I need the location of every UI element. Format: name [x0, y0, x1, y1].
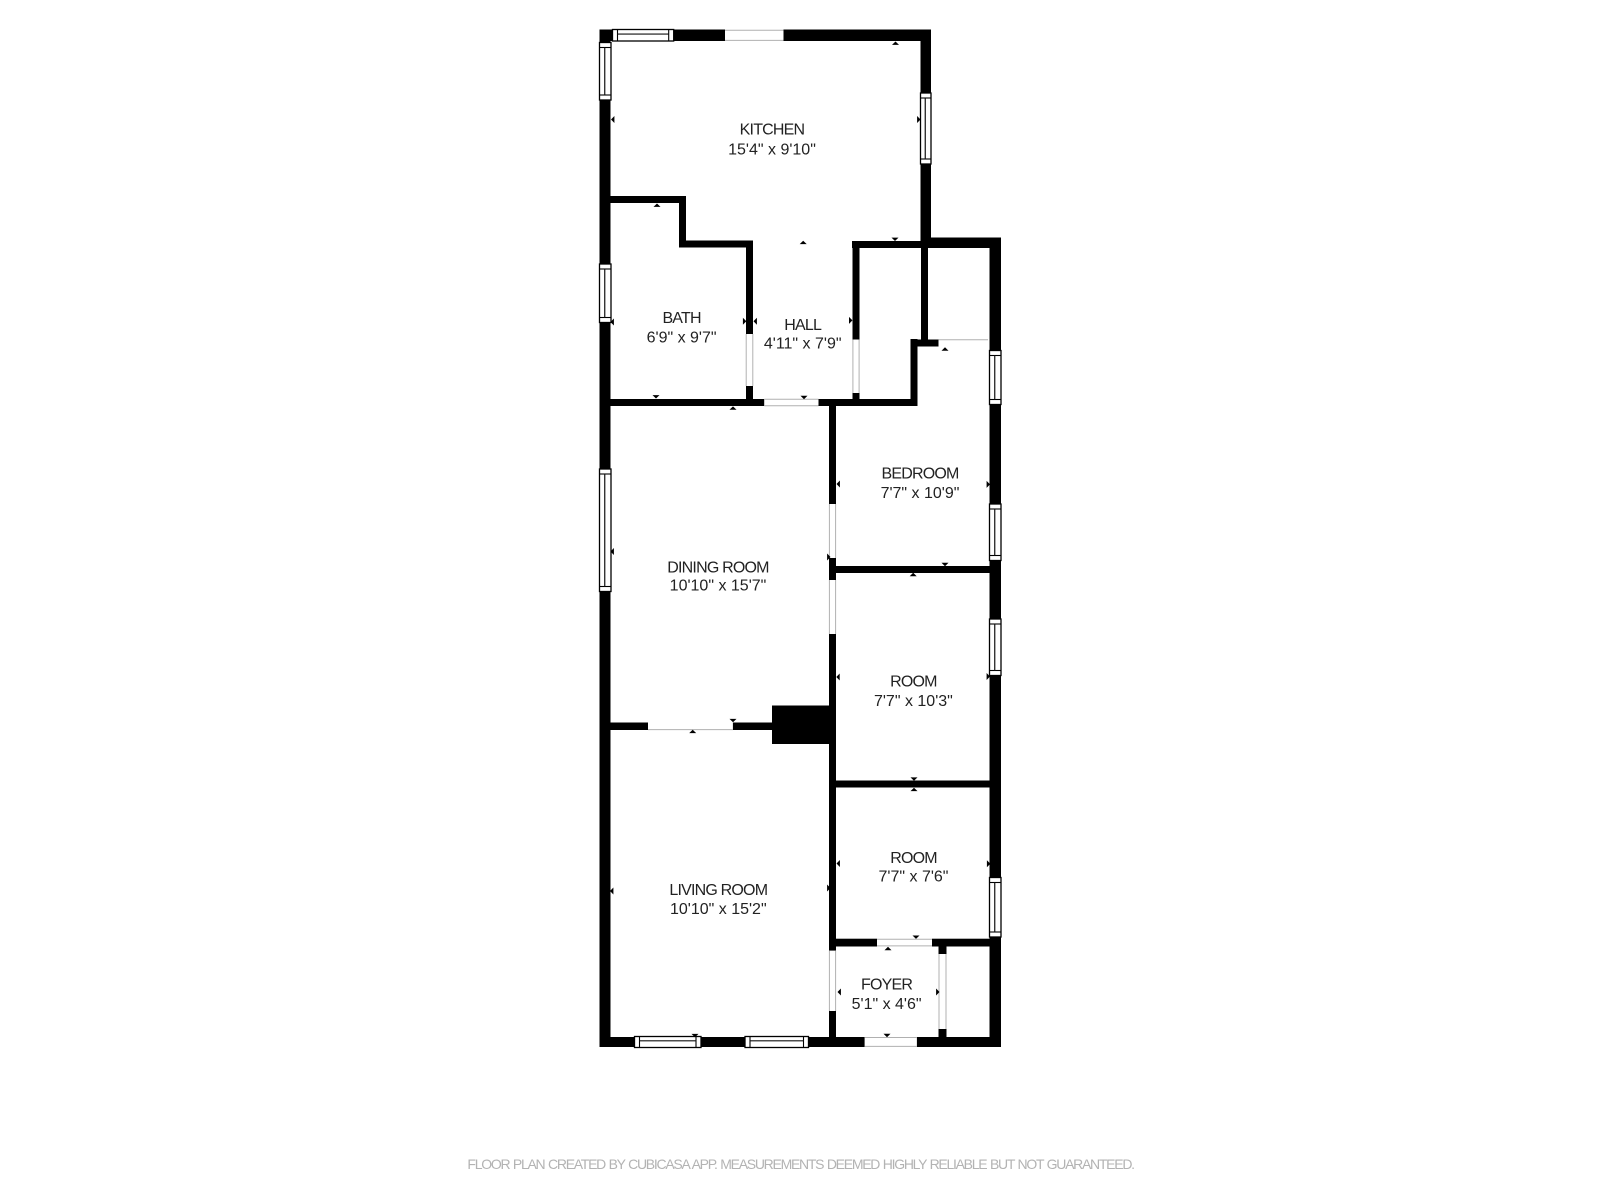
svg-text:BATH: BATH [662, 310, 701, 327]
svg-text:15'4" x 9'10": 15'4" x 9'10" [728, 142, 816, 159]
svg-text:LIVING ROOM: LIVING ROOM [669, 882, 767, 899]
svg-text:6'9" x 9'7": 6'9" x 9'7" [647, 329, 717, 346]
svg-text:10'10" x 15'2": 10'10" x 15'2" [670, 901, 767, 918]
svg-text:5'1" x 4'6": 5'1" x 4'6" [852, 996, 922, 1013]
svg-text:BEDROOM: BEDROOM [881, 466, 959, 483]
svg-text:FOYER: FOYER [861, 977, 912, 994]
svg-text:FLOOR PLAN CREATED BY CUBICASA: FLOOR PLAN CREATED BY CUBICASA APP. MEAS… [467, 1156, 1134, 1172]
svg-text:10'10" x 15'7": 10'10" x 15'7" [670, 578, 767, 595]
svg-text:HALL: HALL [784, 317, 822, 334]
svg-text:7'7" x 10'9": 7'7" x 10'9" [881, 485, 960, 502]
svg-text:7'7" x 10'3": 7'7" x 10'3" [874, 693, 953, 710]
svg-text:4'11" x 7'9": 4'11" x 7'9" [764, 336, 842, 353]
svg-text:ROOM: ROOM [890, 850, 937, 867]
svg-text:KITCHEN: KITCHEN [740, 122, 805, 139]
svg-text:ROOM: ROOM [890, 673, 937, 690]
svg-text:7'7" x 7'6": 7'7" x 7'6" [879, 869, 949, 886]
svg-text:DINING ROOM: DINING ROOM [667, 559, 769, 576]
